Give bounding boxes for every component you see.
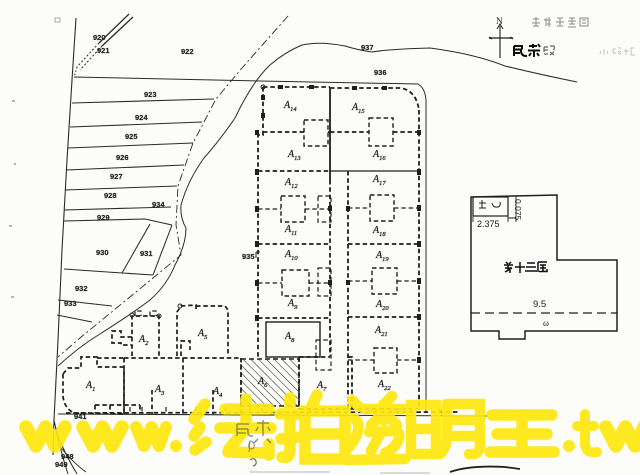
svg-text:920: 920 [93, 33, 106, 42]
svg-text:928: 928 [104, 191, 117, 200]
svg-text:N: N [496, 17, 503, 27]
svg-text:932: 932 [75, 284, 88, 293]
svg-text:924: 924 [135, 113, 148, 122]
svg-text:922: 922 [181, 47, 194, 56]
svg-text:923: 923 [144, 90, 157, 99]
svg-text:936: 936 [374, 68, 387, 77]
svg-text:921: 921 [97, 46, 110, 55]
svg-text:934: 934 [152, 200, 165, 209]
svg-text:ω: ω [543, 318, 549, 328]
svg-text:926: 926 [116, 153, 129, 162]
svg-text:941: 941 [74, 412, 87, 421]
svg-text:949: 949 [55, 460, 68, 469]
svg-text:930: 930 [96, 248, 109, 257]
svg-text:935: 935 [242, 252, 255, 261]
svg-text:927: 927 [110, 172, 123, 181]
svg-text:925: 925 [125, 132, 138, 141]
svg-text:937: 937 [361, 43, 374, 52]
svg-text:931: 931 [140, 249, 153, 258]
svg-text:0.075: 0.075 [513, 199, 523, 221]
svg-text:929: 929 [97, 213, 110, 222]
svg-text:9.5: 9.5 [533, 299, 546, 310]
svg-text:2.375: 2.375 [477, 219, 500, 229]
svg-text:933: 933 [64, 299, 77, 308]
